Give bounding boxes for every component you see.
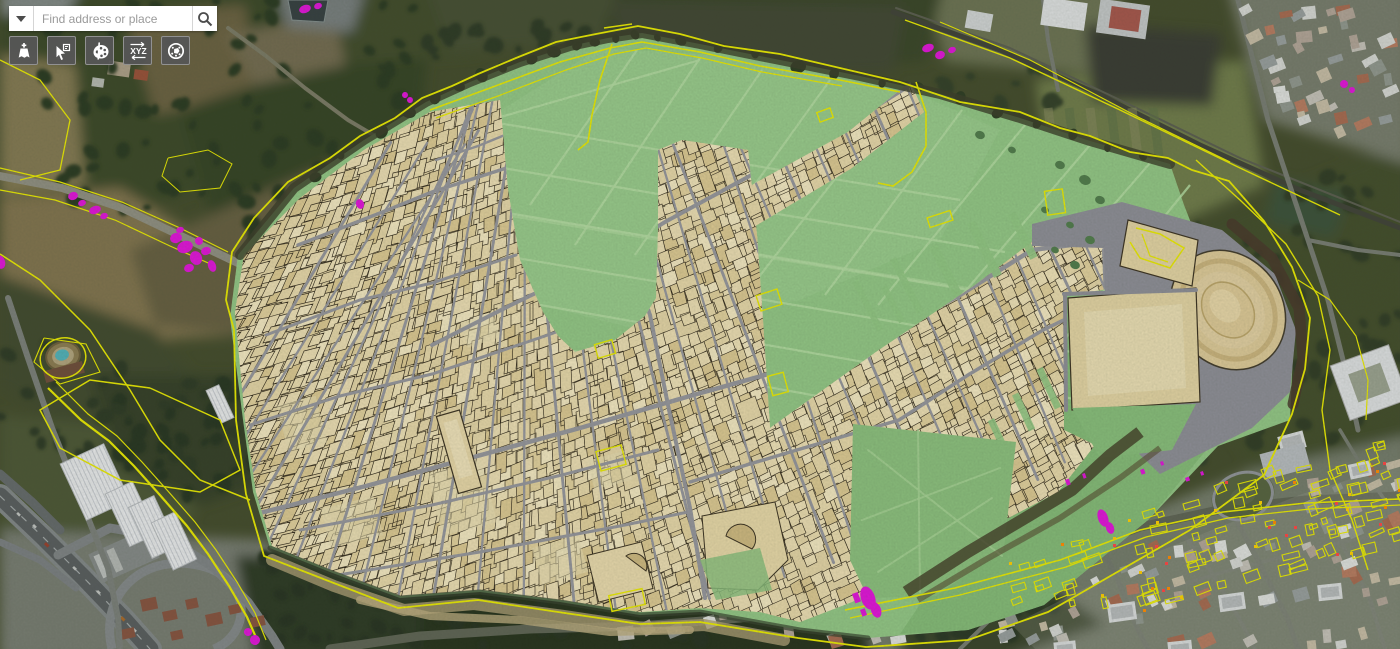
svg-text:XYZ: XYZ [130, 46, 147, 56]
